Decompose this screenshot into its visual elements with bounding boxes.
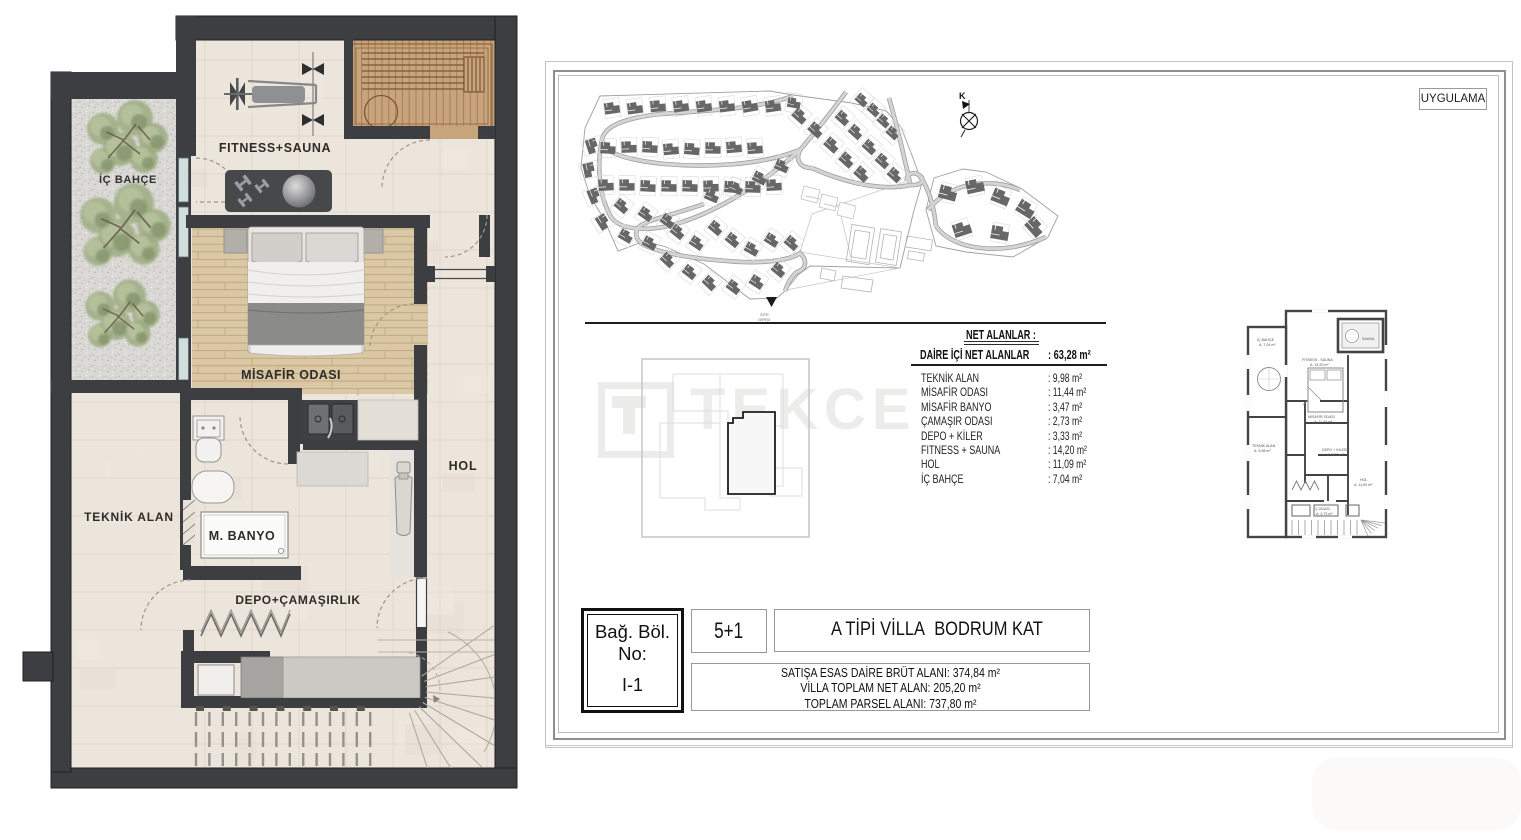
svg-text:M. BANYO: M. BANYO bbox=[209, 529, 276, 543]
svg-text:K: K bbox=[959, 91, 966, 101]
svg-text:DEPO + KİLER: DEPO + KİLER bbox=[1322, 447, 1347, 452]
svg-text:TEKNİK ALAN: TEKNİK ALAN bbox=[84, 509, 174, 524]
svg-text:TEKNİK ALAN: TEKNİK ALAN bbox=[1252, 443, 1276, 448]
svg-text:A. 14,20 m²: A. 14,20 m² bbox=[1310, 363, 1329, 367]
svg-text:SAUNA: SAUNA bbox=[1362, 337, 1375, 341]
svg-text:HOL: HOL bbox=[1360, 478, 1367, 482]
svg-text:A. 11,09 m²: A. 11,09 m² bbox=[1354, 483, 1373, 487]
svg-text:HOL: HOL bbox=[449, 459, 478, 473]
svg-text:A. 11,44 m²: A. 11,44 m² bbox=[1314, 420, 1333, 424]
svg-text:FITNESS - SAUNA: FITNESS - SAUNA bbox=[1302, 358, 1333, 362]
svg-text:İÇ BAHÇE: İÇ BAHÇE bbox=[99, 173, 157, 186]
svg-text:İÇ BAHÇE: İÇ BAHÇE bbox=[1257, 337, 1275, 342]
svg-text:A. 2,73 m²: A. 2,73 m² bbox=[1316, 512, 1333, 516]
svg-text:MİSAFİR ODASI: MİSAFİR ODASI bbox=[241, 367, 341, 382]
svg-text:A. 7,04 m²: A. 7,04 m² bbox=[1259, 343, 1276, 347]
svg-text:DEPO+ÇAMAŞIRLIK: DEPO+ÇAMAŞIRLIK bbox=[235, 593, 360, 607]
svg-text:A. 9,98 m²: A. 9,98 m² bbox=[1254, 449, 1271, 453]
svg-text:MİSAFİR ODASI: MİSAFİR ODASI bbox=[1308, 414, 1335, 419]
svg-text:Ç.ODASI: Ç.ODASI bbox=[1315, 507, 1330, 511]
svg-text:FITNESS+SAUNA: FITNESS+SAUNA bbox=[219, 141, 331, 155]
svg-text:A. 3,33 m²: A. 3,33 m² bbox=[1327, 453, 1344, 457]
